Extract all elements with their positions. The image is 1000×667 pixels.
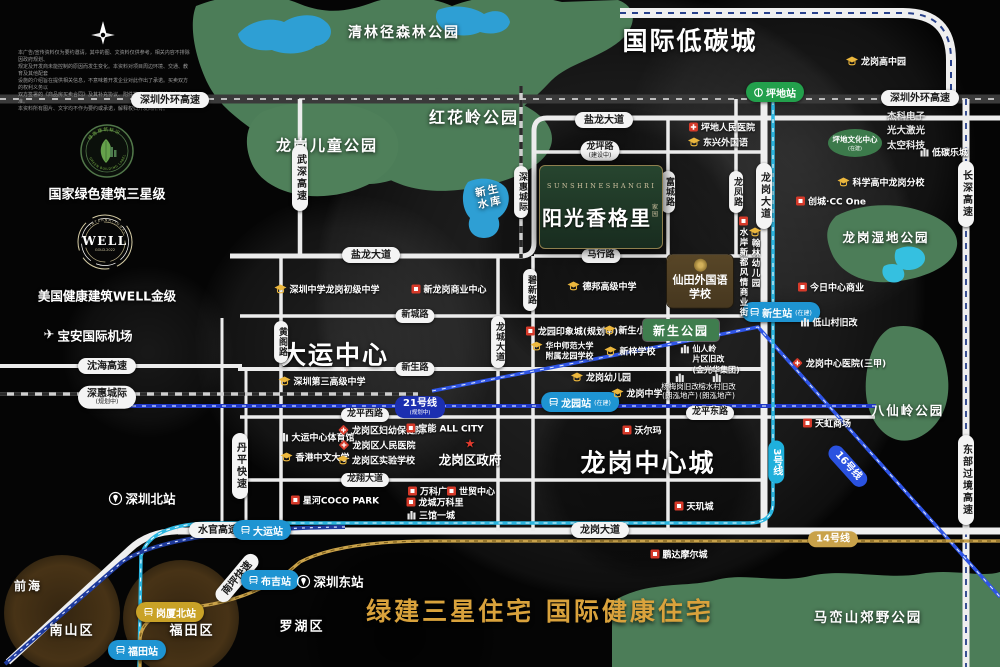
area-honghualing-park: 红花岭公园: [429, 109, 519, 127]
poi-three-halls-one-city: 三馆一城: [407, 509, 455, 522]
poi-baoneng-all-city: 宝能 ALL CITY: [406, 422, 483, 435]
poi-xinzi-school: 新梓学校: [604, 345, 655, 358]
pill-shenzhen-outer-ring-expwy-w: 深圳外环高速: [131, 92, 209, 108]
pill-fucheng-road: 富城路: [661, 171, 675, 213]
poi-shenzhen-east-station: 深圳东站: [296, 572, 363, 591]
poi-low-carbon-joy-city: 低碳乐城: [920, 146, 968, 159]
poi-shenzhong-longgang-junior: 深圳中学龙岗初级中学: [274, 283, 379, 296]
school-icon: [749, 228, 761, 237]
pill-xinsheng-road: 新生路: [395, 362, 434, 376]
rail-icon: [108, 491, 122, 505]
poi-shenzhen-north-station: 深圳北站: [108, 489, 175, 508]
green-badge-caption: 国家绿色建筑三星级: [48, 184, 165, 203]
school-icon: [337, 456, 349, 465]
poi-science-high-longgang: 科学高中龙岗分校: [837, 176, 924, 189]
area-longgang-wetland-park: 龙岗湿地公园: [842, 231, 929, 245]
school-icon: [274, 285, 286, 294]
hosp-icon: [338, 440, 349, 451]
red-icon: [803, 419, 812, 428]
poi-dishan-village-renewal: 低山村旧改: [800, 316, 857, 329]
poi-shenzhen-third-senior-high: 深圳第三高级中学: [278, 375, 365, 388]
label-pingdi-culture-center: 坪地文化中心(在建): [828, 129, 882, 157]
school-icon: [571, 373, 583, 382]
plane-icon: ✈: [44, 329, 55, 342]
red-icon: [406, 498, 415, 507]
poi-debang-senior-high: 德邦高级中学: [567, 280, 636, 293]
cross-icon: [689, 123, 698, 132]
school-icon: [846, 57, 858, 66]
red-icon: [796, 197, 805, 206]
poi-longgang-central-hospital: 龙岗中心医院(三甲): [792, 357, 886, 370]
pill-longping-west-road: 龙平西路: [341, 408, 389, 422]
train-icon: [750, 308, 759, 316]
bld-icon: [920, 148, 929, 157]
well-badge-year: GOLD.2022: [95, 248, 115, 252]
red-icon: [526, 327, 535, 336]
school-badge-icon: [694, 259, 707, 272]
road-nanping-expwy: [5, 527, 345, 664]
pill-shenhui-intercity-w: 深惠城际(规划中): [78, 386, 136, 409]
area-luohu-district: 罗湖区: [279, 621, 324, 636]
school-icon: [688, 138, 700, 147]
poi-cc-one: 创城·CC One: [796, 195, 866, 208]
bld-icon: [680, 344, 689, 353]
area-qianhai: 前海: [14, 580, 42, 594]
map-canvas: SUNSHINE SHANGRI 阳光香格里 家园 绿建三星住宅: [0, 0, 1000, 667]
well-badge-title: WELL: [81, 234, 128, 248]
red-icon: [650, 550, 659, 559]
pill-shenzhen-outer-ring-expwy-e: 深圳外环高速: [881, 90, 959, 106]
train-icon: [144, 608, 153, 616]
station-futian: 福田站: [108, 640, 166, 660]
bld-icon: [800, 318, 809, 327]
train-icon: [549, 398, 558, 406]
poi-rainbow-store: 天虹商场: [803, 417, 851, 430]
well-badge: INTERNATIONAL WELL GOLD.2022: [75, 212, 135, 276]
poi-longgang-middle-school: 龙岗中学: [611, 387, 662, 400]
pill-wushen-expwy: 武深高速: [292, 145, 308, 211]
poi-longgang-high-school-park: 龙岗高中园: [846, 55, 906, 68]
area-dayun-center: 大运中心: [281, 342, 389, 371]
pill-xincheng-road: 新城路: [395, 309, 434, 323]
pill-maxing-road: 马行路: [581, 249, 620, 263]
poi-baoan-airport: ✈宝安国际机场: [44, 326, 133, 345]
project-logo-board: SUNSHINE SHANGRI 阳光香格里 家园: [539, 165, 663, 249]
project-name-en-left: SUNSHINE: [547, 182, 606, 190]
line-3-label: 3号线: [768, 441, 784, 484]
red-icon: [406, 424, 415, 433]
well-badge-caption: 美国健康建筑WELL金级: [38, 286, 176, 305]
project-name-suffix: 家园: [652, 204, 660, 218]
area-xinsheng-reservoir: 新生水库: [474, 183, 503, 212]
red-icon: [798, 283, 807, 292]
train-icon: [241, 526, 250, 534]
poi-shuian-xindu-street: 水岸新都风情商业街: [737, 217, 749, 318]
pill-shenhui-intercity-n: 深惠城际: [514, 166, 528, 218]
poi-new-longgang-business-center: 新龙岗商业中心: [411, 283, 486, 296]
area-maluanshan-country-park: 马峦山郊野公园: [814, 611, 923, 627]
project-name-cn: 阳光香格里: [542, 202, 652, 231]
red-icon: [408, 487, 417, 496]
area-nanshan-district: 南山区: [49, 625, 94, 640]
poi-longcheng-vanke-li: 龙城万科里: [406, 496, 463, 509]
road-nanping-dashes: [5, 527, 345, 664]
mlogo-icon: [754, 88, 763, 97]
red-icon: [291, 496, 300, 505]
pill-bixin-road: 碧新路: [523, 269, 537, 311]
red-icon: [674, 502, 683, 511]
area-qinglinjing-forest-park: 清林径森林公园: [348, 25, 460, 41]
pill-yanlong-avenue-n: 盐龙大道: [575, 112, 633, 128]
poi-dongxing-foreign-language: 东兴外国语: [688, 136, 748, 149]
school-icon: [603, 326, 615, 335]
pill-eastern-transit-expwy: 东部过境高速: [958, 435, 974, 525]
area-baxianling-park: 八仙岭公园: [872, 404, 945, 418]
rail-icon: [296, 574, 310, 588]
poi-yangmeigang-renewal: 杨梅岗旧改(朗泓地产): [661, 373, 699, 401]
area-longgang-central-city: 龙岗中心城: [580, 450, 715, 479]
project-name-en-right: SHANGRI: [606, 182, 657, 190]
slogan-text: 绿建三星住宅 国际健康住宅: [366, 592, 714, 628]
station-gangxiabei: 岗厦北站: [136, 602, 204, 622]
station-buji: 布吉站: [241, 570, 299, 590]
poi-longgang-people-hospital: 龙岗区人民医院: [338, 439, 415, 452]
school-icon: [567, 282, 579, 291]
pill-longgang-avenue-n: 龙岗大道: [756, 163, 772, 229]
area-futian-district: 福田区: [169, 625, 214, 640]
compass-icon: [90, 20, 116, 50]
school-icon: [604, 347, 616, 356]
label-xinsheng-park: 新生公园: [643, 319, 719, 341]
school-icon: [611, 389, 623, 398]
bld-icon: [713, 373, 722, 382]
bld-icon: [676, 373, 685, 382]
poi-xianrenling-renewal: 仙人岭片区旧改(金光华集团): [680, 344, 739, 375]
school-icon: [278, 377, 290, 386]
poi-longgang-experimental-school: 龙岗区实验学校: [337, 454, 415, 467]
area-international-low-carbon-city: 国际低碳城: [622, 28, 757, 57]
pill-yanlong-avenue-w: 盐龙大道: [342, 247, 400, 263]
school-icon: [837, 178, 849, 187]
hosp-icon: [338, 425, 349, 436]
red-icon: [411, 285, 420, 294]
pill-longping-road: 龙坪路(建设中): [580, 141, 619, 161]
pill-huangge-road: 黄阁路: [274, 321, 288, 363]
label-xiantian-foreign-language-school: 仙田外国语学校: [667, 255, 733, 308]
red-icon: [447, 487, 456, 496]
school-icon: [280, 453, 292, 462]
pill-shenhai-expwy: 沈海高速: [78, 358, 136, 374]
star-icon: ★: [465, 438, 476, 450]
hosp-icon: [792, 358, 803, 369]
poi-tianji-city: 天玑城: [674, 500, 713, 513]
pill-danping-expwy: 丹平快速: [232, 433, 248, 499]
poi-ccnu-longyuan-school: 华中师范大学附属龙园学校: [531, 342, 594, 363]
train-icon: [116, 646, 125, 654]
pill-longcheng-avenue: 龙城大道: [491, 316, 505, 368]
line-14-label: 14号线: [808, 531, 858, 547]
line-21-label: 21号线(规划中): [395, 396, 445, 418]
red-icon: [622, 426, 631, 435]
red-icon: [739, 217, 748, 226]
poi-rongshui-village-renewal: 榕水村旧改(朗泓地产): [698, 373, 736, 401]
bld-icon: [407, 511, 416, 520]
poi-longgang-district-government: ★龙岗区政府: [439, 438, 502, 469]
station-dayun: 大运站: [233, 520, 291, 540]
poi-pengda-mall: 鹏达摩尔城: [650, 548, 707, 561]
station-pingdi: 坪地站: [746, 82, 804, 102]
pill-longping-east-road: 龙平东路: [686, 406, 734, 420]
pill-changshen-expwy: 长深高速: [958, 161, 974, 227]
green-building-badge: 绿色建筑标识 GREEN BUILDING LABEL: [79, 123, 135, 183]
school-icon: [531, 342, 543, 351]
poi-hanlin-kindergarten: 翰林幼儿园: [749, 228, 761, 289]
park-baxianling-shape: [866, 326, 949, 441]
poi-longgang-kindergarten: 龙岗幼儿园: [571, 371, 631, 384]
pill-longxiang-avenue: 龙翔大道: [341, 473, 389, 487]
bld-icon: [279, 433, 288, 442]
pill-longfeng-road: 龙凤路: [729, 171, 743, 213]
poi-galaxy-coco-park: 星河COCO PARK: [291, 494, 379, 507]
poi-pingdi-people-hospital: 坪地人民医院: [689, 121, 755, 134]
pill-longgang-avenue-s: 龙岗大道: [571, 522, 629, 538]
train-icon: [249, 576, 258, 584]
poi-today-center-business: 今日中心商业: [798, 281, 864, 294]
poi-walmart: 沃尔玛: [622, 424, 661, 437]
station-longyuan: 龙园站(在建): [541, 392, 619, 412]
